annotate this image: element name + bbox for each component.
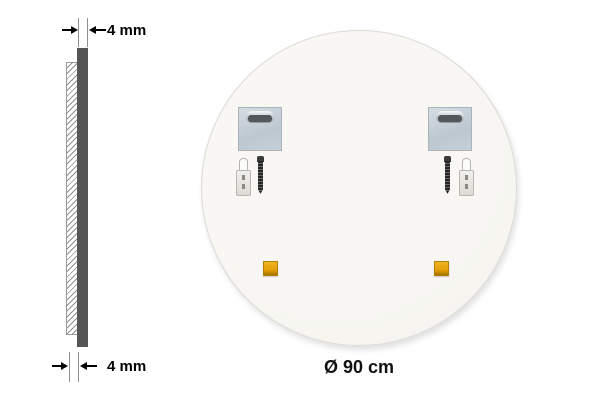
- screw-right: [444, 156, 451, 194]
- wall-plug-left: [236, 158, 251, 196]
- wall-plug-slot: [242, 184, 245, 189]
- dimension-arrowhead-icon: [61, 362, 68, 370]
- dimension-extension-line: [78, 18, 79, 47]
- wall-plug-body: [236, 170, 251, 196]
- wall-plug-slot: [465, 184, 468, 189]
- diameter-label: Ø 90 cm: [201, 357, 517, 378]
- thickness-label-bottom: 4 mm: [107, 358, 146, 375]
- screw-thread: [445, 161, 450, 194]
- product-dimension-diagram: 4 mm 4 mm: [0, 0, 600, 400]
- dimension-arrow-left-icon: [96, 29, 106, 31]
- dimension-arrowhead-icon: [71, 26, 78, 34]
- wall-plug-slot: [242, 175, 245, 180]
- adhesive-pad-left: [263, 261, 278, 276]
- wall-plug-slot: [465, 175, 468, 180]
- dimension-extension-line: [78, 352, 79, 382]
- dimension-arrow-left-icon: [87, 365, 97, 367]
- keyhole-slot-icon: [246, 111, 274, 123]
- dimension-extension-line: [87, 18, 88, 47]
- mounting-plate-right: [428, 107, 472, 151]
- thickness-label-top: 4 mm: [107, 22, 146, 39]
- keyhole-slot-opening: [248, 115, 272, 122]
- adhesive-pad-right: [434, 261, 449, 276]
- wall-plug-right: [459, 158, 474, 196]
- wall-plug-body: [459, 170, 474, 196]
- keyhole-slot-icon: [436, 111, 464, 123]
- dimension-arrowhead-icon: [89, 26, 96, 34]
- dimension-arrowhead-icon: [80, 362, 87, 370]
- screw-left: [257, 156, 264, 194]
- screw-thread: [258, 161, 263, 194]
- dimension-extension-line: [69, 352, 70, 382]
- mounting-plate-left: [238, 107, 282, 151]
- mirror-profile-bar: [77, 48, 88, 347]
- keyhole-slot-opening: [438, 115, 462, 122]
